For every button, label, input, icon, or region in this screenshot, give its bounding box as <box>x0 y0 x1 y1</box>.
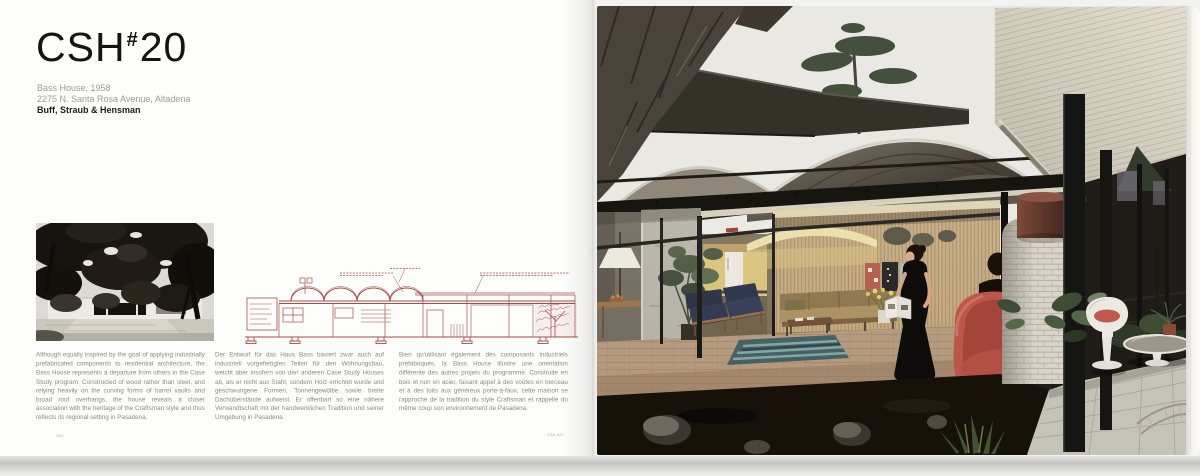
black-steel-column <box>1063 94 1085 452</box>
title-hash: # <box>127 29 139 51</box>
bw-photo-house-exterior <box>36 223 214 341</box>
body-text-german: Der Entwurf für das Haus Bass basiert zw… <box>215 351 384 423</box>
body-text-french: Bien qu'utilisant également des composan… <box>399 351 568 414</box>
section-drawing <box>243 264 580 348</box>
book-bottom-shadow <box>0 456 1200 476</box>
title-prefix: CSH <box>36 24 126 70</box>
page-title: CSH#20 <box>36 27 187 68</box>
color-photo-bass-house <box>597 6 1186 455</box>
brown-cylinder-chimney <box>1017 192 1069 243</box>
open-book <box>885 296 911 319</box>
address: 2275 N. Santa Rosa Avenue, Altadena <box>37 94 190 105</box>
left-page: CSH#20 Bass House, 1958 2275 N. Santa Ro… <box>0 0 592 458</box>
house-name: Bass House, 1958 <box>37 83 190 94</box>
architects: Buff, Straub & Hensman <box>37 105 190 116</box>
page-edge <box>1186 6 1200 455</box>
body-column-german: Der Entwurf für das Haus Bass basiert zw… <box>215 351 385 433</box>
running-title: CSH #20 <box>547 433 564 437</box>
right-page <box>597 6 1186 455</box>
project-meta: Bass House, 1958 2275 N. Santa Rosa Aven… <box>37 83 190 115</box>
terracotta-pot <box>1163 324 1176 335</box>
page-number: 134 <box>56 434 63 438</box>
body-column-french: Bien qu'utilisant également des composan… <box>399 351 569 433</box>
fence-post <box>1100 150 1112 430</box>
body-column-english: Although equally inspired by the goal of… <box>36 351 206 433</box>
book-spread: CSH#20 Bass House, 1958 2275 N. Santa Ro… <box>0 0 1200 476</box>
body-text-english: Although equally inspired by the goal of… <box>36 351 205 423</box>
title-number: 20 <box>140 24 188 70</box>
